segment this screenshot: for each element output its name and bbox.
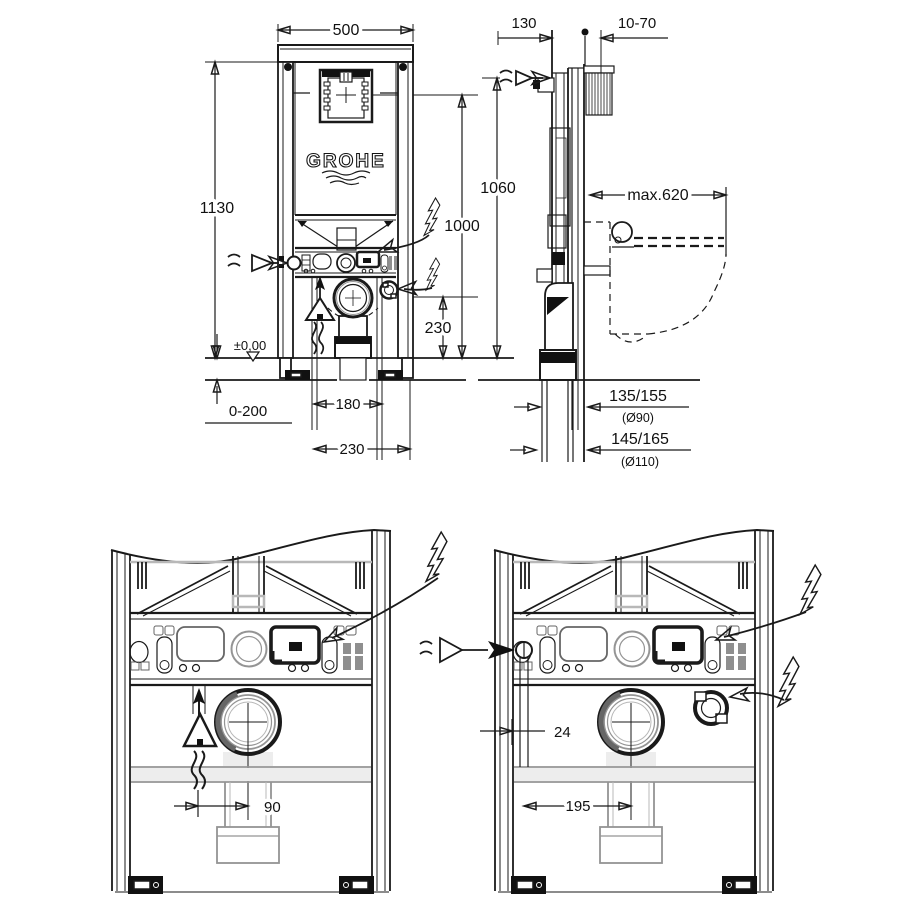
dimension-supply-offset: 180: [314, 396, 382, 413]
dimension-detail-socket-offset: 195: [524, 798, 631, 815]
dimension-wall-range: 10-70: [601, 15, 668, 73]
svg-text:135/155: 135/155: [609, 388, 667, 405]
svg-text:(Ø110): (Ø110): [621, 455, 659, 469]
svg-text:230: 230: [339, 441, 364, 458]
svg-text:90: 90: [264, 799, 281, 816]
detail-view-left: 90: [111, 530, 447, 894]
technical-drawing-page: GROHE: [0, 0, 923, 923]
water-inlet-point: [288, 257, 301, 270]
front-view: GROHE: [200, 22, 480, 460]
bowl-fixing-rod: [584, 266, 610, 275]
brand-text: GROHE: [306, 151, 386, 172]
wc-bowl-outline: [584, 222, 726, 342]
inspection-opening: [320, 70, 372, 122]
dimension-drain-110: 145/165 (Ø110): [510, 431, 691, 469]
svg-text:0-200: 0-200: [229, 403, 267, 420]
side-view: 130 10-70 1060 max.620: [478, 15, 726, 469]
svg-text:195: 195: [565, 798, 590, 815]
svg-text:±0,00: ±0,00: [234, 338, 266, 353]
power-socket: [695, 692, 727, 724]
svg-text:(Ø90): (Ø90): [622, 411, 654, 425]
dimension-drain-90: 135/155 (Ø90): [514, 388, 689, 425]
dimension-drain-offset: 230: [314, 441, 410, 458]
dimension-side-depth: 130: [498, 15, 552, 45]
svg-text:1130: 1130: [200, 200, 235, 217]
svg-text:max.620: max.620: [627, 187, 688, 204]
lightning-icon: [321, 532, 447, 648]
lightning-icon: [714, 565, 821, 646]
svg-text:180: 180: [335, 396, 360, 413]
installation-drawing: GROHE: [0, 0, 923, 923]
wall-anchor-rod: [586, 73, 612, 115]
water-supply-arrow-icon: [420, 638, 515, 662]
wall-reference-dot: [582, 29, 589, 36]
detail-view-right: 24 195: [420, 530, 821, 894]
svg-text:230: 230: [425, 320, 452, 337]
dimension-detail-pipe-offset: 24: [480, 719, 571, 745]
dimension-front-height: 1130: [200, 62, 235, 358]
dimension-detail-drain-offset: 90: [174, 790, 281, 817]
svg-text:1000: 1000: [444, 218, 480, 235]
svg-text:10-70: 10-70: [618, 15, 656, 32]
svg-text:24: 24: [554, 724, 571, 741]
condensate-warning-icon: [306, 276, 334, 354]
dimension-front-width: 500: [278, 22, 413, 39]
svg-text:1060: 1060: [480, 180, 516, 197]
svg-text:500: 500: [333, 22, 360, 39]
water-inlet-pipe: [516, 641, 532, 767]
svg-text:145/165: 145/165: [611, 431, 669, 448]
svg-text:130: 130: [511, 15, 536, 32]
dimension-actuation-height: 1000: [444, 95, 480, 358]
grohe-logo: GROHE: [306, 151, 386, 185]
dimension-outlet-height: 230: [425, 297, 452, 358]
dimension-supply-height: 1060: [480, 78, 516, 358]
